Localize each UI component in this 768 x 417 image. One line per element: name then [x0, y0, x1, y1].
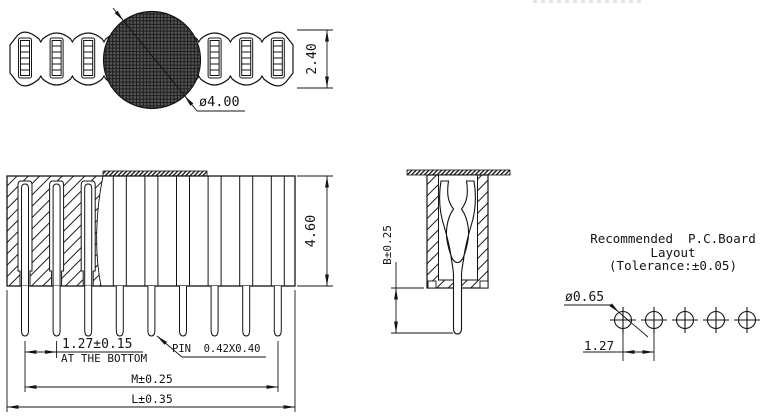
pcb-title-line3: (Tolerance:±0.05): [573, 260, 768, 273]
pin-protrusion-dim-label: B±0.25: [382, 212, 396, 278]
side-view-tape-strip: [103, 171, 207, 176]
pin-size-label: PIN 0.42X0.40: [172, 344, 261, 355]
pcb-hole-pitch-label: 1.27: [584, 340, 614, 353]
pin-span-dim-label: M±0.25: [112, 374, 192, 386]
section-tape-strip: [407, 170, 510, 175]
engineering-drawing-sheet: 2.40 ø4.00 4.60 1.27±0.15 AT THE BOTTOM …: [0, 0, 768, 417]
side-view-height-dim-label: 4.60: [305, 206, 319, 256]
sectioned-slots: [18, 181, 95, 286]
pin-pitch-note-label: AT THE BOTTOM: [61, 353, 147, 364]
pcb-hole-dia-leader: [564, 305, 648, 337]
overall-length-dim-label: L±0.35: [112, 394, 192, 406]
section-view: [391, 170, 510, 334]
pcb-holes: [610, 307, 760, 333]
tape-hole-circle: [104, 12, 201, 109]
housing-notch-left: [428, 281, 436, 288]
top-view: [10, 8, 333, 111]
pcb-title-line1: Recommended P.C.Board: [573, 233, 768, 246]
tape-hole-dia-label: ø4.00: [199, 96, 240, 110]
pcb-hole-dia-label: ø0.65: [565, 291, 604, 304]
pin-pitch-dim-label: 1.27±0.15: [62, 338, 132, 351]
top-view-height-dim-label: 2.40: [306, 34, 320, 84]
side-view-pins: [22, 286, 282, 336]
housing-notch-right: [480, 281, 488, 288]
